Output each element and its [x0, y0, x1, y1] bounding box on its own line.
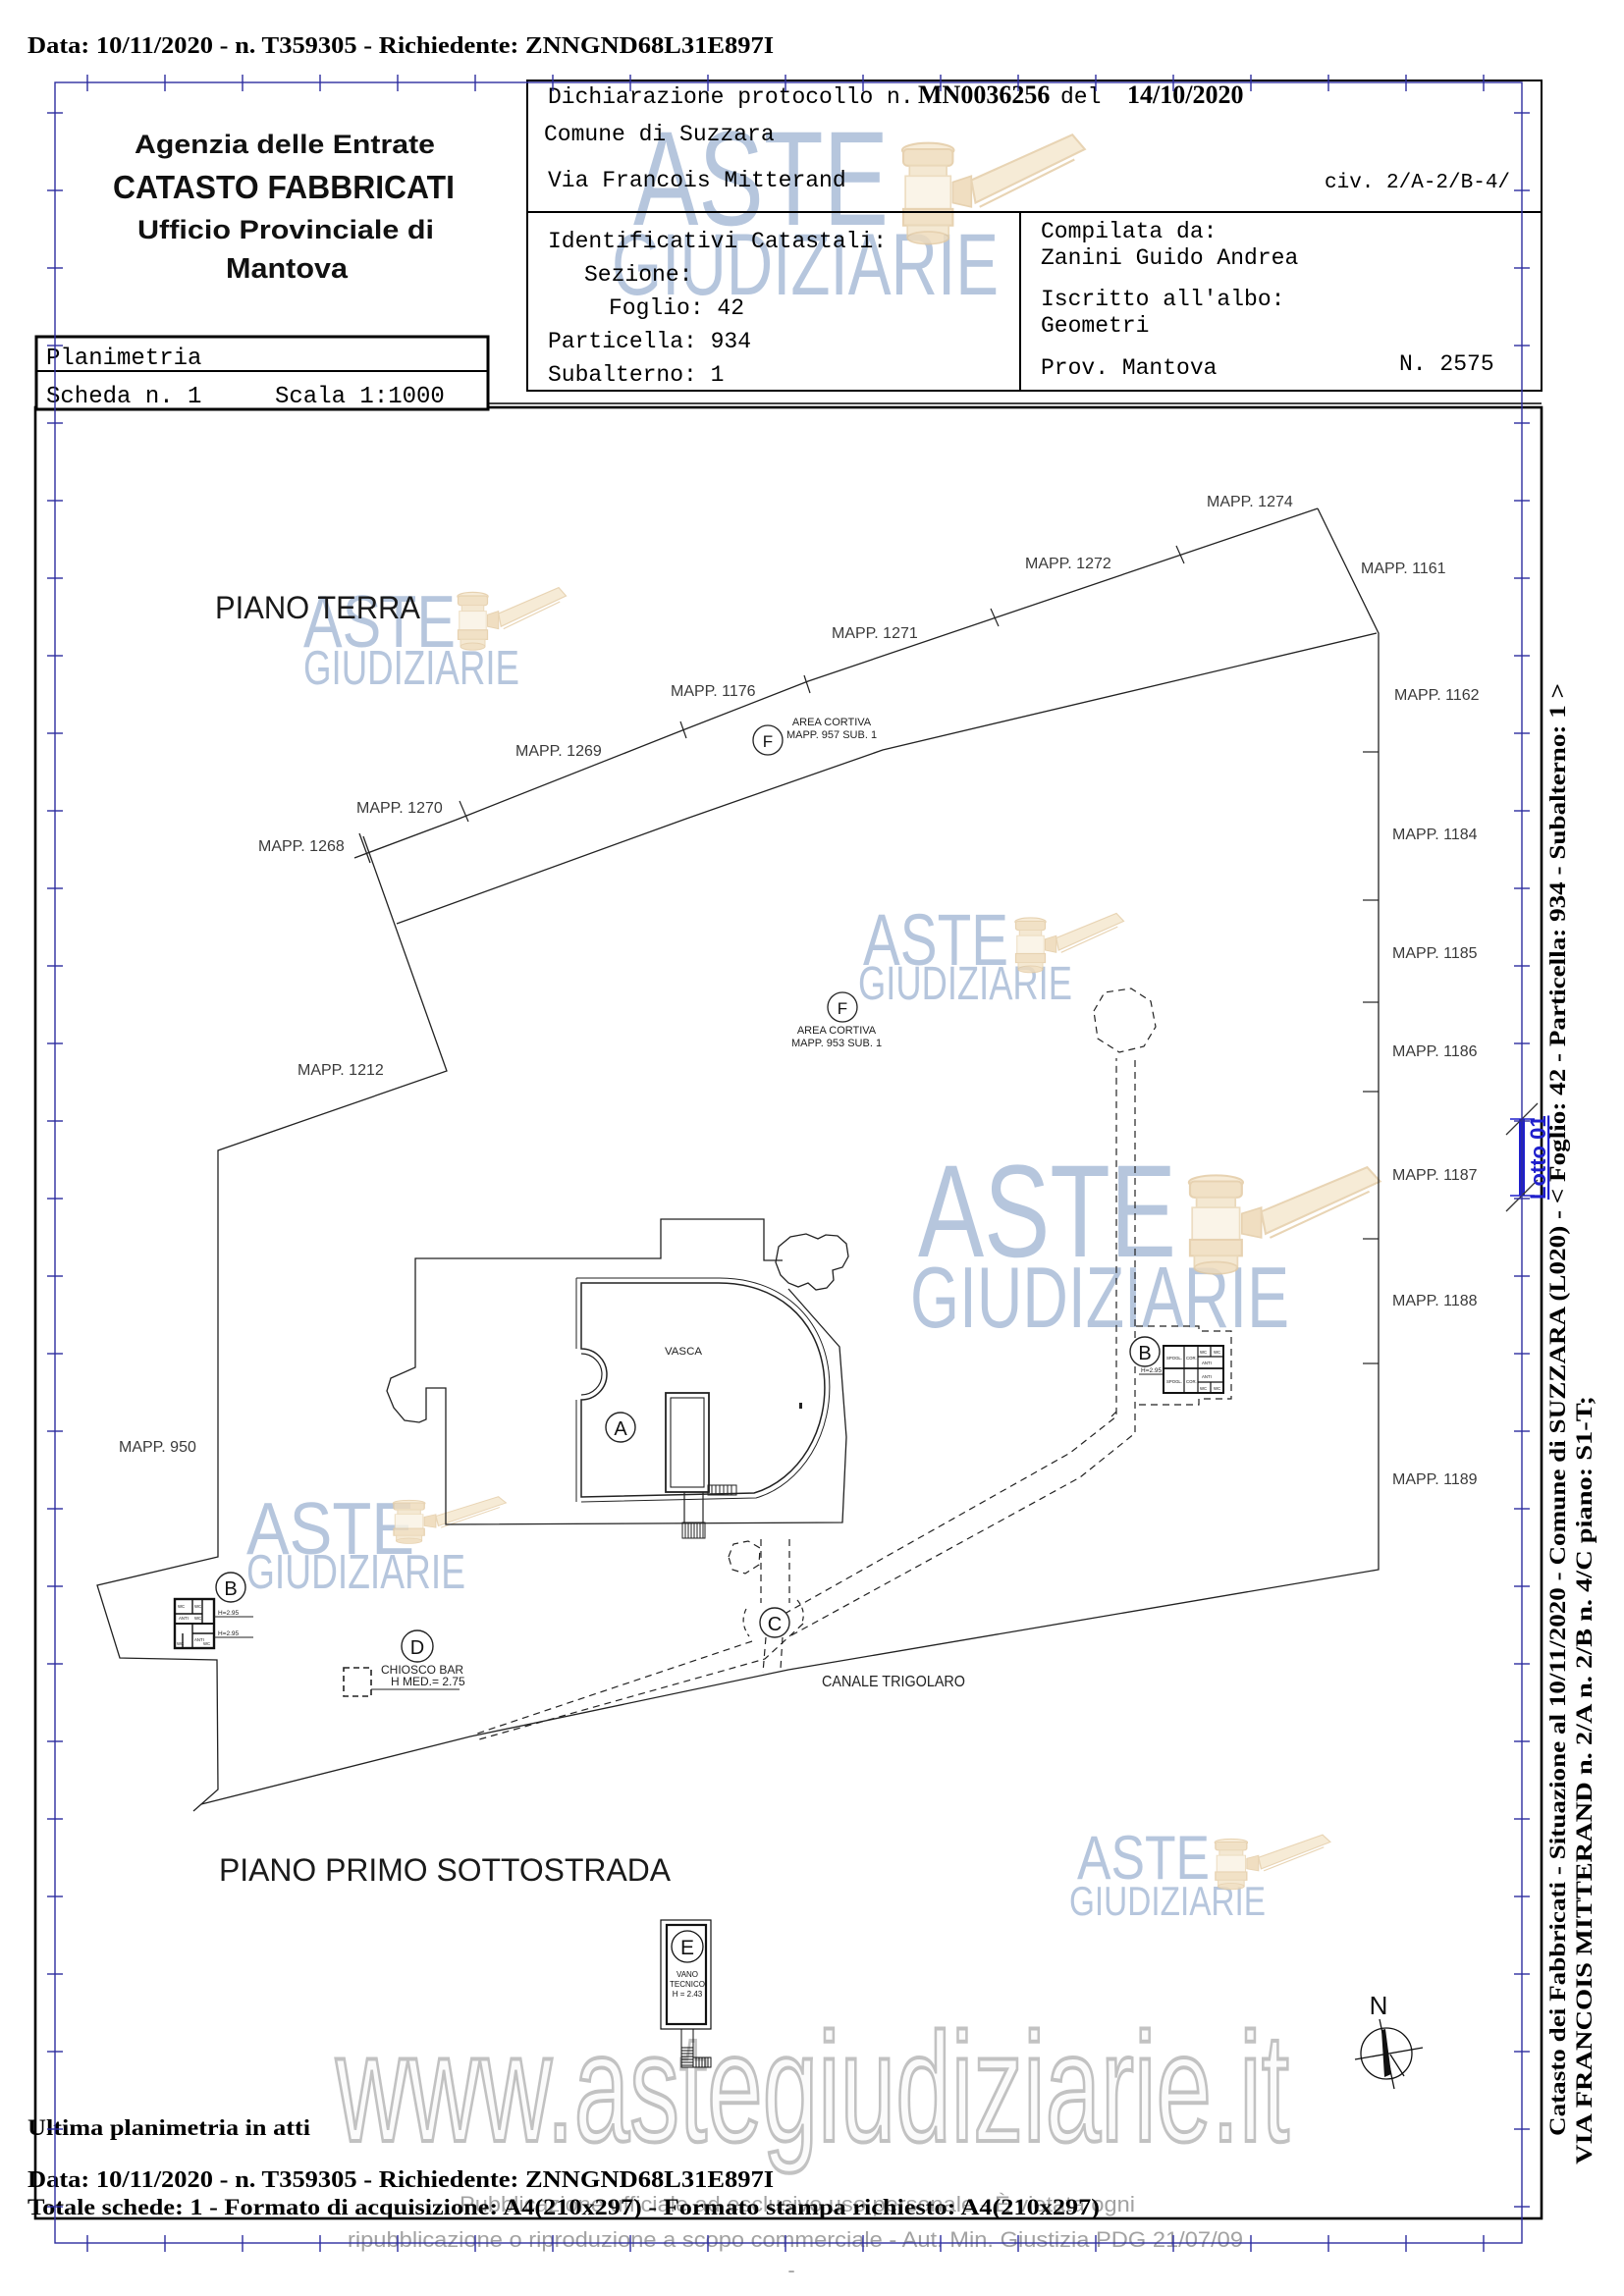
svg-text:WC: WC	[1214, 1350, 1220, 1355]
svg-text:MAPP. 1189: MAPP. 1189	[1392, 1471, 1478, 1488]
svg-text:AREA CORTIVA: AREA CORTIVA	[792, 717, 872, 728]
svg-text:A: A	[614, 1418, 627, 1440]
svg-text:MAPP. 1269: MAPP. 1269	[515, 743, 602, 760]
svg-text:Ultima planimetria in atti: Ultima planimetria in atti	[27, 2115, 311, 2140]
svg-text:Ufficio Provinciale di: Ufficio Provinciale di	[137, 215, 434, 244]
svg-text:MAPP. 1188: MAPP. 1188	[1392, 1293, 1478, 1309]
svg-text:MAPP. 1186: MAPP. 1186	[1392, 1043, 1478, 1060]
svg-text:Prov. Mantova: Prov. Mantova	[1041, 355, 1218, 381]
svg-text:F: F	[838, 999, 847, 1018]
svg-text:N. 2575: N. 2575	[1399, 351, 1494, 377]
svg-text:Dichiarazione protocollo n.: Dichiarazione protocollo n.	[548, 84, 914, 110]
svg-text:Foglio: 42: Foglio: 42	[609, 295, 744, 321]
svg-text:Compilata da:: Compilata da:	[1041, 219, 1217, 244]
svg-text:MAPP. 957 SUB. 1: MAPP. 957 SUB. 1	[786, 729, 877, 741]
svg-text:N: N	[1370, 1991, 1388, 2020]
svg-text:COR.: COR.	[1186, 1379, 1197, 1384]
svg-text:PIANO TERRA: PIANO TERRA	[215, 590, 421, 625]
svg-text:VANO: VANO	[677, 1970, 698, 1979]
svg-text:E: E	[680, 1937, 694, 1959]
svg-text:del: del	[1060, 84, 1101, 110]
svg-text:Geometri: Geometri	[1041, 313, 1149, 339]
svg-text:Agenzia delle Entrate: Agenzia delle Entrate	[135, 130, 435, 159]
svg-text:WC: WC	[1200, 1386, 1207, 1391]
svg-text:MAPP. 1270: MAPP. 1270	[356, 800, 443, 817]
svg-text:WC: WC	[194, 1604, 201, 1609]
svg-text:Data: 10/11/2020 - n. T359305: Data: 10/11/2020 - n. T359305 - Richiede…	[27, 33, 774, 59]
svg-text:Planimetria: Planimetria	[46, 346, 201, 372]
svg-text:Zanini Guido Andrea: Zanini Guido Andrea	[1041, 245, 1298, 271]
svg-text:Catasto dei Fabbricati - Situa: Catasto dei Fabbricati - Situazione al 1…	[1545, 683, 1570, 2136]
svg-text:ANTI: ANTI	[1202, 1361, 1212, 1365]
svg-text:Sezione:: Sezione:	[584, 262, 692, 288]
svg-text:Identificativi Catastali:: Identificativi Catastali:	[548, 229, 887, 254]
svg-text:ripubblicazione o riproduzione: ripubblicazione o riproduzione a scopo c…	[348, 2227, 1243, 2252]
svg-text:www.astegiudiziarie.it: www.astegiudiziarie.it	[335, 2002, 1289, 2174]
svg-text:Data: 10/11/2020 - n. T359305: Data: 10/11/2020 - n. T359305 - Richiede…	[27, 2167, 774, 2193]
svg-text:MAPP. 1162: MAPP. 1162	[1394, 687, 1480, 704]
svg-text:ANTI: ANTI	[179, 1616, 189, 1621]
svg-text:civ. 2/A-2/B-4/: civ. 2/A-2/B-4/	[1325, 172, 1510, 194]
svg-text:ANTI: ANTI	[1202, 1374, 1212, 1379]
svg-text:H=2.95: H=2.95	[1141, 1367, 1163, 1374]
svg-text:Totale schede: 1 - Formato di: Totale schede: 1 - Formato di acquisizio…	[27, 2195, 1100, 2219]
svg-text:MAPP. 1212: MAPP. 1212	[298, 1062, 384, 1079]
svg-text:F: F	[763, 732, 773, 751]
svg-text:14/10/2020: 14/10/2020	[1127, 80, 1243, 109]
svg-text:H MED.= 2.75: H MED.= 2.75	[391, 1675, 465, 1688]
svg-text:COR.: COR.	[1186, 1356, 1197, 1361]
svg-text:WC: WC	[1214, 1386, 1220, 1391]
svg-text:B: B	[224, 1578, 237, 1600]
svg-text:MAPP. 950: MAPP. 950	[119, 1439, 196, 1456]
svg-text:SPOGL.: SPOGL.	[1166, 1379, 1182, 1384]
svg-text:WC: WC	[177, 1641, 184, 1646]
svg-text:PIANO PRIMO SOTTOSTRADA: PIANO PRIMO SOTTOSTRADA	[219, 1852, 672, 1888]
svg-text:AREA CORTIVA: AREA CORTIVA	[797, 1025, 877, 1037]
svg-text:WC: WC	[203, 1641, 210, 1646]
svg-text:MAPP. 1271: MAPP. 1271	[832, 625, 918, 642]
svg-text:TECNICO: TECNICO	[670, 1980, 705, 1989]
svg-text:H=2.95: H=2.95	[218, 1610, 240, 1617]
svg-text:-: -	[787, 2258, 794, 2282]
svg-text:GIUDIZIARIE: GIUDIZIARIE	[303, 642, 519, 695]
svg-text:MAPP. 1268: MAPP. 1268	[258, 838, 345, 855]
svg-text:MAPP. 1161: MAPP. 1161	[1361, 561, 1446, 577]
svg-text:H=2.95: H=2.95	[218, 1630, 240, 1637]
svg-text:VIA FRANCOIS MITTERAND n. 2/A: VIA FRANCOIS MITTERAND n. 2/A n. 2/B n. …	[1572, 1396, 1597, 2164]
svg-text:MAPP. 1272: MAPP. 1272	[1025, 556, 1111, 572]
svg-text:Scheda n. 1: Scheda n. 1	[46, 384, 201, 410]
svg-text:MAPP. 1184: MAPP. 1184	[1392, 827, 1478, 843]
svg-text:CATASTO FABBRICATI: CATASTO FABBRICATI	[113, 169, 455, 205]
svg-text:MAPP. 1176: MAPP. 1176	[671, 683, 756, 700]
svg-text:H = 2.43: H = 2.43	[673, 1990, 703, 1999]
svg-text:Scala 1:1000: Scala 1:1000	[275, 384, 445, 410]
svg-text:CANALE TRIGOLARO: CANALE TRIGOLARO	[822, 1674, 965, 1690]
svg-text:WC: WC	[194, 1616, 201, 1621]
svg-text:MAPP. 953 SUB. 1: MAPP. 953 SUB. 1	[791, 1038, 882, 1049]
svg-text:WC: WC	[178, 1604, 185, 1609]
svg-text:Iscritto all'albo:: Iscritto all'albo:	[1041, 287, 1284, 312]
svg-text:Lotto 01: Lotto 01	[1526, 1115, 1550, 1200]
svg-text:Comune di Suzzara: Comune di Suzzara	[544, 122, 775, 147]
svg-text:GIUDIZIARIE: GIUDIZIARIE	[246, 1546, 465, 1599]
svg-text:MAPP. 1185: MAPP. 1185	[1392, 945, 1478, 962]
svg-text:MN0036256: MN0036256	[918, 80, 1050, 109]
svg-text:WC: WC	[1200, 1350, 1207, 1355]
svg-text:Via Francois Mitterand: Via Francois Mitterand	[548, 168, 846, 193]
svg-text:SPOGL.: SPOGL.	[1166, 1356, 1182, 1361]
svg-text:Subalterno: 1: Subalterno: 1	[548, 362, 724, 388]
svg-text:D: D	[410, 1637, 424, 1659]
svg-text:MAPP. 1187: MAPP. 1187	[1392, 1167, 1478, 1184]
svg-text:Particella: 934: Particella: 934	[548, 329, 751, 354]
svg-text:Mantova: Mantova	[226, 253, 349, 285]
svg-text:VASCA: VASCA	[665, 1346, 703, 1358]
svg-text:C: C	[768, 1614, 782, 1635]
svg-text:B: B	[1138, 1343, 1151, 1364]
svg-text:MAPP. 1274: MAPP. 1274	[1207, 494, 1293, 510]
